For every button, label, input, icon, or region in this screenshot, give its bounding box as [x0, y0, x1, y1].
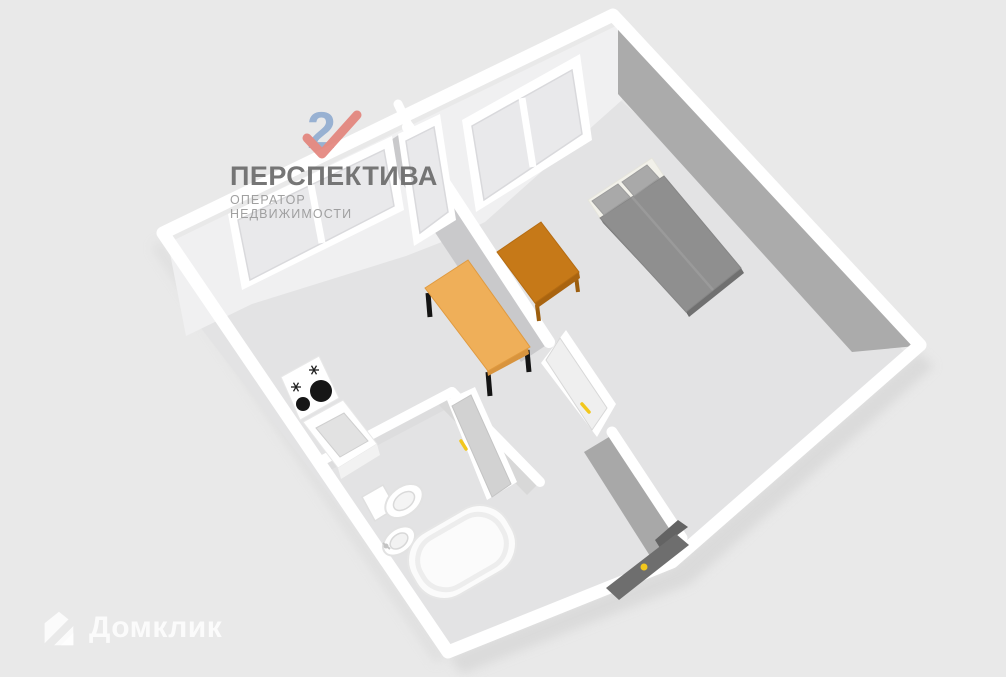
burner-small	[296, 397, 310, 411]
burner-large	[310, 380, 332, 402]
floorplan-screenshot: 2 ПЕРСПЕКТИВА ОПЕРАТОР НЕДВИЖИМОСТИ Домк…	[0, 0, 1006, 677]
floorplan-3d-render	[0, 0, 1006, 677]
table-leg	[428, 293, 430, 317]
entrance-door-handle	[641, 564, 648, 571]
